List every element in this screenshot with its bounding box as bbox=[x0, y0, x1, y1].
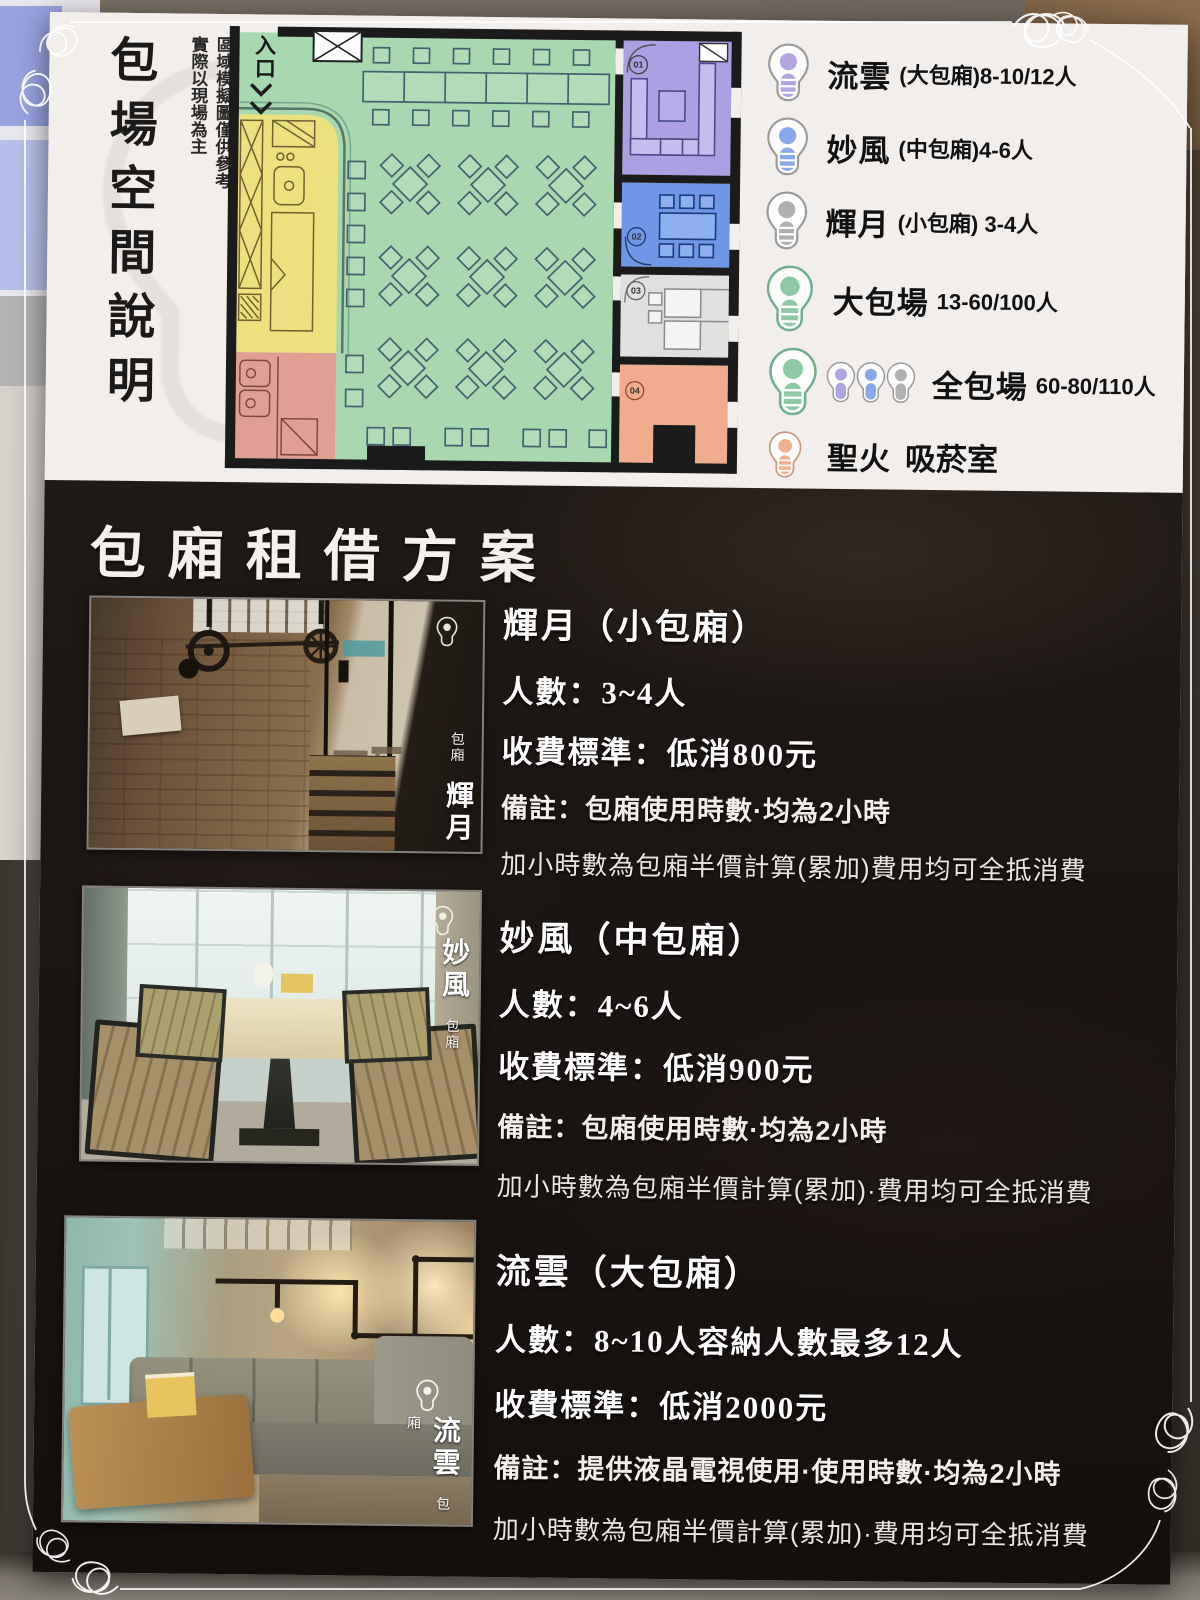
legend-name: 全包場 bbox=[932, 361, 1029, 407]
legend-detail: 吸菸室 bbox=[905, 433, 999, 479]
room-price: 收費標準：低消2000元 bbox=[494, 1379, 1090, 1431]
room-extra-note: 加小時數為包廂半價計算(累加)費用均可全抵消費 bbox=[500, 844, 1087, 888]
room-extra-note: 加小時數為包廂半價計算(累加)·費用均可全抵消費 bbox=[497, 1166, 1093, 1210]
photo-label-large: 流雲 bbox=[428, 1415, 460, 1479]
legend-item-quanbaochang: 全包場 60-80/110人 bbox=[761, 346, 1172, 421]
legend-item-dabaochang: 大包場 13-60/100人 bbox=[762, 264, 1173, 337]
tissue-box bbox=[281, 974, 313, 993]
bulb-icon-group bbox=[761, 346, 916, 418]
restaurant-logo-bulb bbox=[432, 905, 454, 935]
room-price: 收費標準：低消900元 bbox=[498, 1041, 1094, 1093]
photo-label-small: 包廂 bbox=[449, 732, 465, 764]
bench-right-back bbox=[342, 987, 432, 1064]
restaurant-logo-bulb bbox=[415, 1379, 439, 1411]
page-title-vertical: 包場空間說明 bbox=[89, 34, 164, 475]
room-number-04: 04 bbox=[630, 386, 640, 396]
tissue-box bbox=[120, 696, 182, 736]
miaofeng-plan-text: 妙風（中包廂） 人數：4~6人 收費標準：低消900元 備註：包廂使用時數·均為… bbox=[497, 910, 1096, 1210]
photo-label-large: 妙風 bbox=[438, 938, 470, 1002]
room-02-furniture bbox=[659, 195, 716, 258]
photo-room-label: 流雲 包廂 bbox=[403, 1415, 464, 1525]
room-capacity: 人數：4~6人 bbox=[499, 979, 1095, 1031]
huiyue-plan-text: 輝月（小包廂） 人數：3~4人 收費標準：低消800元 備註：包廂使用時數·均為… bbox=[500, 597, 1090, 888]
bulb-icon-green bbox=[762, 264, 817, 333]
room-price: 收費標準：低消800元 bbox=[501, 726, 1088, 778]
room-capacity: 人數：8~10人容納人數最多12人 bbox=[495, 1314, 1091, 1366]
legend-name: 輝月 bbox=[825, 198, 890, 244]
photo-miaofeng-room: 妙風 包廂 bbox=[79, 885, 482, 1166]
legend-detail: 13-60/100人 bbox=[937, 284, 1058, 317]
bulb-icon-purple bbox=[765, 42, 812, 103]
menu-paper: 包場空間說明 區域模擬圖僅供參考 實際以現場為主 入口 bbox=[32, 12, 1188, 1585]
room-number-03: 03 bbox=[631, 286, 641, 296]
legend-name: 流雲 bbox=[827, 50, 892, 96]
legend-item-shenghuo: 聖火 吸菸室 bbox=[761, 430, 1172, 483]
legend-item-huiyue: 輝月 (小包廂) 3-4人 bbox=[763, 190, 1174, 255]
bulb-icon-gray bbox=[763, 190, 810, 251]
legend-name: 聖火 bbox=[827, 432, 892, 478]
legend-name: 大包場 bbox=[833, 276, 930, 322]
restaurant-logo-bulb bbox=[436, 616, 458, 646]
liuyun-plan-text: 流雲（大包廂） 人數：8~10人容納人數最多12人 收費標準：低消2000元 備… bbox=[493, 1243, 1092, 1553]
photo-label-large: 輝月 bbox=[442, 780, 474, 844]
bulb-icon-blue bbox=[764, 116, 811, 177]
room-note: 備註：包廂使用時數·均為2小時 bbox=[501, 786, 1088, 832]
background-floorplan-fragment bbox=[0, 140, 52, 290]
legend-detail: 60-80/110人 bbox=[1036, 368, 1156, 401]
photo-huiyue-room: 包廂 輝月 bbox=[87, 595, 486, 853]
bench-left-back bbox=[136, 984, 228, 1063]
tissue-box bbox=[145, 1372, 196, 1418]
floor-plan: 01 02 03 04 bbox=[217, 22, 746, 480]
table-base bbox=[240, 1129, 319, 1146]
legend-item-miaofeng: 妙風 (中包廂)4-6人 bbox=[764, 116, 1175, 181]
prep-area bbox=[233, 352, 336, 459]
photo-label-small: 包廂 bbox=[444, 1019, 460, 1051]
venue-map-section: 包場空間說明 區域模擬圖僅供參考 實際以現場為主 入口 bbox=[45, 12, 1188, 493]
rental-plans-section: 包廂租借方案 bbox=[32, 480, 1182, 1585]
room-number-02: 02 bbox=[631, 232, 641, 242]
bulb-icon-orange bbox=[767, 430, 804, 478]
room-heading: 輝月（小包廂） bbox=[503, 597, 1090, 655]
legend-item-liuyun: 流雲 (大包廂)8-10/12人 bbox=[765, 42, 1176, 107]
room-heading: 流雲（大包廂） bbox=[495, 1243, 1092, 1301]
room-legend: 流雲 (大包廂)8-10/12人 妙風 (中包廂)4-6人 輝月 (小包廂) 3… bbox=[761, 42, 1176, 493]
entrance-label: 入口 bbox=[248, 34, 279, 80]
legend-detail: (小包廂) 3-4人 bbox=[897, 206, 1038, 240]
room-note: 備註：提供液晶電視使用·使用時數·均為2小時 bbox=[493, 1446, 1089, 1492]
room-extra-note: 加小時數為包廂半價計算(累加)·費用均可全抵消費 bbox=[493, 1509, 1089, 1553]
bench bbox=[308, 755, 395, 851]
section-title: 包廂租借方案 bbox=[89, 508, 558, 594]
map-disclaimer-line2: 實際以現場為主 bbox=[181, 36, 211, 482]
photographed-menu-page: 包場空間說明 區域模擬圖僅供參考 實際以現場為主 入口 bbox=[0, 0, 1200, 1600]
legend-name: 妙風 bbox=[826, 124, 891, 170]
room-capacity: 人數：3~4人 bbox=[502, 666, 1089, 718]
photo-room-label: 妙風 包廂 bbox=[432, 938, 473, 1051]
legend-detail: (中包廂)4-6人 bbox=[898, 132, 1033, 166]
photo-liuyun-room: 流雲 包廂 bbox=[61, 1215, 476, 1527]
room-note: 備註：包廂使用時數·均為2小時 bbox=[497, 1105, 1093, 1151]
vase bbox=[253, 963, 273, 988]
room-heading: 妙風（中包廂） bbox=[499, 910, 1096, 968]
photo-room-label: 包廂 輝月 bbox=[437, 731, 478, 844]
room-number-01: 01 bbox=[633, 60, 643, 70]
legend-detail: (大包廂)8-10/12人 bbox=[899, 58, 1077, 92]
